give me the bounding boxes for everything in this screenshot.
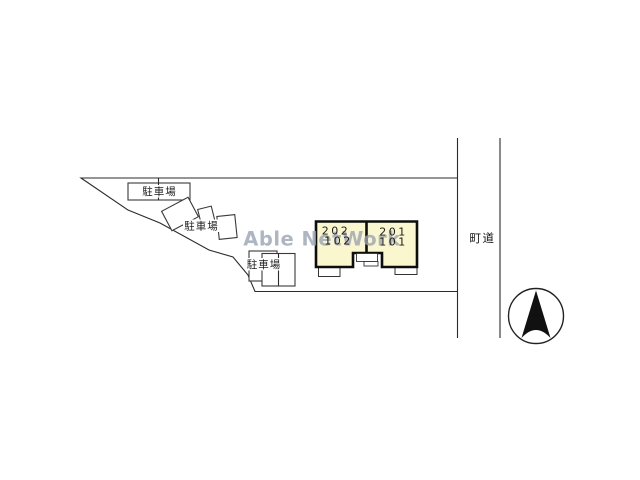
site-plan-canvas: 駐車場 駐車場 駐車場 Able NetWork 20 <box>0 0 640 480</box>
parking-area-2: 駐車場 <box>162 197 238 239</box>
site-plan-drawing: 駐車場 駐車場 駐車場 Able NetWork 20 <box>0 0 640 480</box>
compass <box>509 289 564 344</box>
entrance-step-lower <box>364 262 378 267</box>
unit-label-102: 102 <box>324 235 353 248</box>
parking-area-2-label: 駐車場 <box>184 219 219 232</box>
parking-area-3: 駐車場 <box>246 251 296 286</box>
parking-area-1-label: 駐車場 <box>142 185 177 198</box>
parking-area-1: 駐車場 <box>128 178 190 200</box>
entrance-step-upper <box>357 254 378 262</box>
unit-label-101: 101 <box>379 236 408 249</box>
road-label: 町道 <box>470 231 496 245</box>
parking-area-3-label: 駐車場 <box>247 258 282 271</box>
